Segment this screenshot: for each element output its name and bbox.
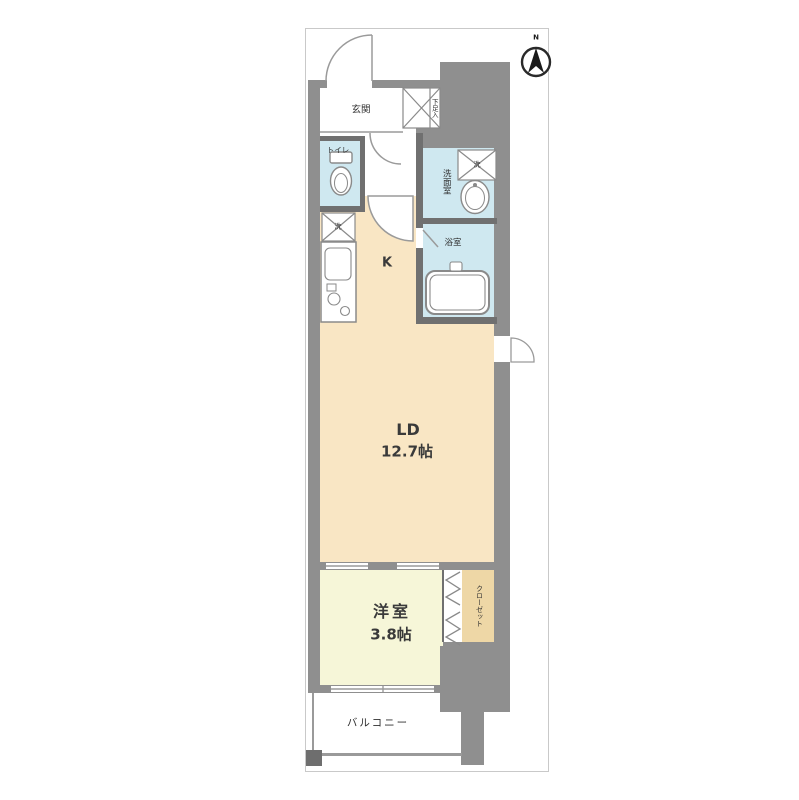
room-hallway (365, 133, 416, 196)
label-closet: クローゼット (476, 585, 483, 627)
label-compass-north: N (533, 35, 539, 42)
sliding-door-ld-bedroom-2 (397, 563, 439, 569)
ld-side-door-opening (494, 336, 510, 362)
room-kitchen (365, 196, 417, 562)
wall-toilet-top (320, 136, 365, 141)
balcony-partition-panel (306, 750, 322, 766)
sliding-door-ld-bedroom-1 (326, 563, 368, 569)
wall-toilet-bottom (320, 206, 365, 212)
label-washroom: 洗面室 (442, 169, 451, 195)
structure-block-topright (440, 62, 510, 148)
room-washroom (423, 148, 494, 218)
label-shoe-cabinet: 下足入 (431, 98, 438, 118)
label-entrance: 玄関 (351, 105, 370, 115)
wall-closet-top (443, 562, 494, 570)
entrance-step-line (320, 131, 403, 133)
label-toilet: トイレ (327, 146, 350, 154)
wall-washroom-bath (416, 218, 497, 224)
wall-toilet-right (360, 136, 365, 206)
label-kitchen: K (382, 257, 392, 270)
wall-bedroom-closet (442, 570, 444, 642)
label-living-dining-size: 12.7帖 (381, 445, 433, 460)
label-balcony: バルコニー (347, 718, 409, 729)
bedroom-window-opening (331, 686, 434, 692)
wall-bath-bottom (416, 317, 497, 324)
wall-hall-washroom (416, 133, 423, 218)
closet-door-strip (443, 570, 462, 642)
label-western-room: 洋室 (373, 604, 411, 620)
structure-block-bottomright (440, 646, 510, 712)
label-bathroom: 浴室 (444, 239, 461, 248)
wall-left (308, 80, 320, 693)
floor-plan: 玄関 下足入 トイレ 洗面室 洗 浴室 洗 K LD 12.7帖 洋室 3.8帖… (0, 0, 799, 800)
balcony-edge-bottom (312, 753, 462, 756)
label-washer-kitchen: 洗 (335, 224, 342, 231)
wall-closet-bottom (443, 642, 494, 648)
label-living-dining: LD (396, 422, 419, 438)
bath-door-opening (416, 228, 423, 248)
room-kitchen-left (320, 212, 365, 562)
label-western-room-size: 3.8帖 (370, 628, 412, 643)
entrance-door-opening (327, 80, 372, 88)
label-washer-washroom: 洗 (474, 162, 481, 169)
balcony-edge-left (312, 693, 314, 755)
structure-column-balcony (461, 712, 484, 765)
